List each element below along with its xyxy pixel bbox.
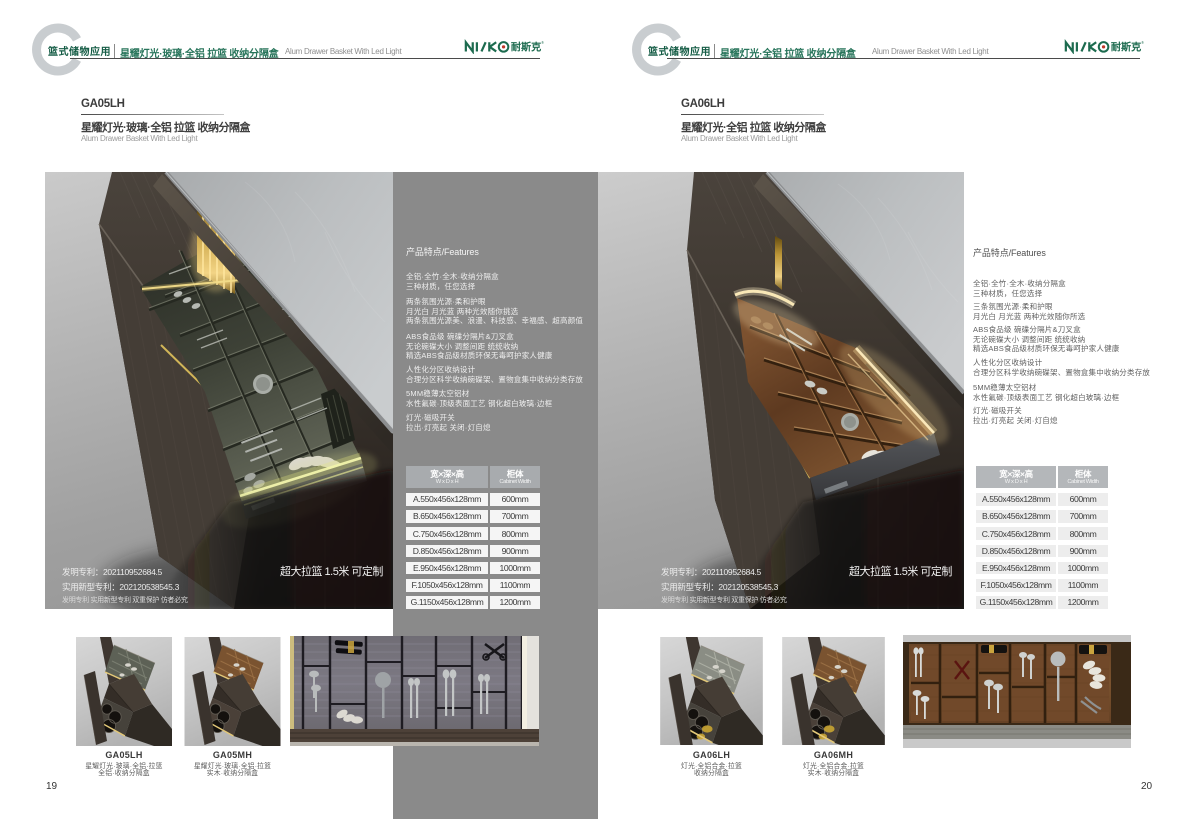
svg-text:®: ® [1141,41,1144,45]
svg-text:耐斯克: 耐斯克 [511,41,541,54]
svg-text:耐斯克: 耐斯克 [1111,41,1141,54]
svg-text:®: ® [541,41,544,45]
